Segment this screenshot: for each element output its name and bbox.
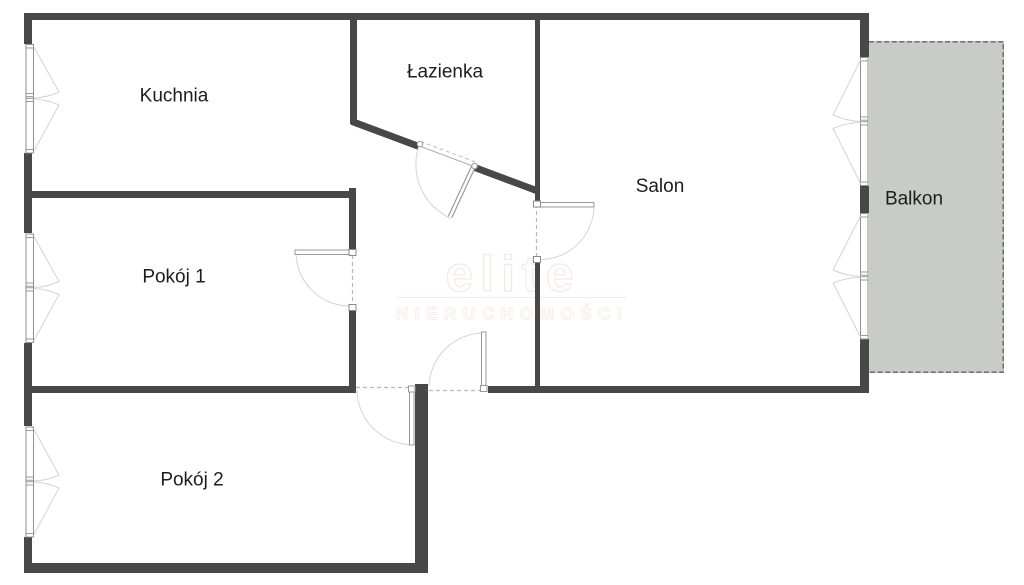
svg-text:Łazienka: Łazienka [407, 62, 483, 83]
svg-text:Salon: Salon [636, 176, 685, 197]
svg-text:Balkon: Balkon [885, 189, 943, 210]
svg-text:Pokój 1: Pokój 1 [142, 267, 205, 288]
svg-text:NIERUCHOMOŚCI: NIERUCHOMOŚCI [396, 303, 629, 324]
svg-text:elite: elite [445, 246, 580, 302]
svg-text:Kuchnia: Kuchnia [140, 86, 209, 107]
svg-text:Pokój 2: Pokój 2 [160, 470, 223, 491]
